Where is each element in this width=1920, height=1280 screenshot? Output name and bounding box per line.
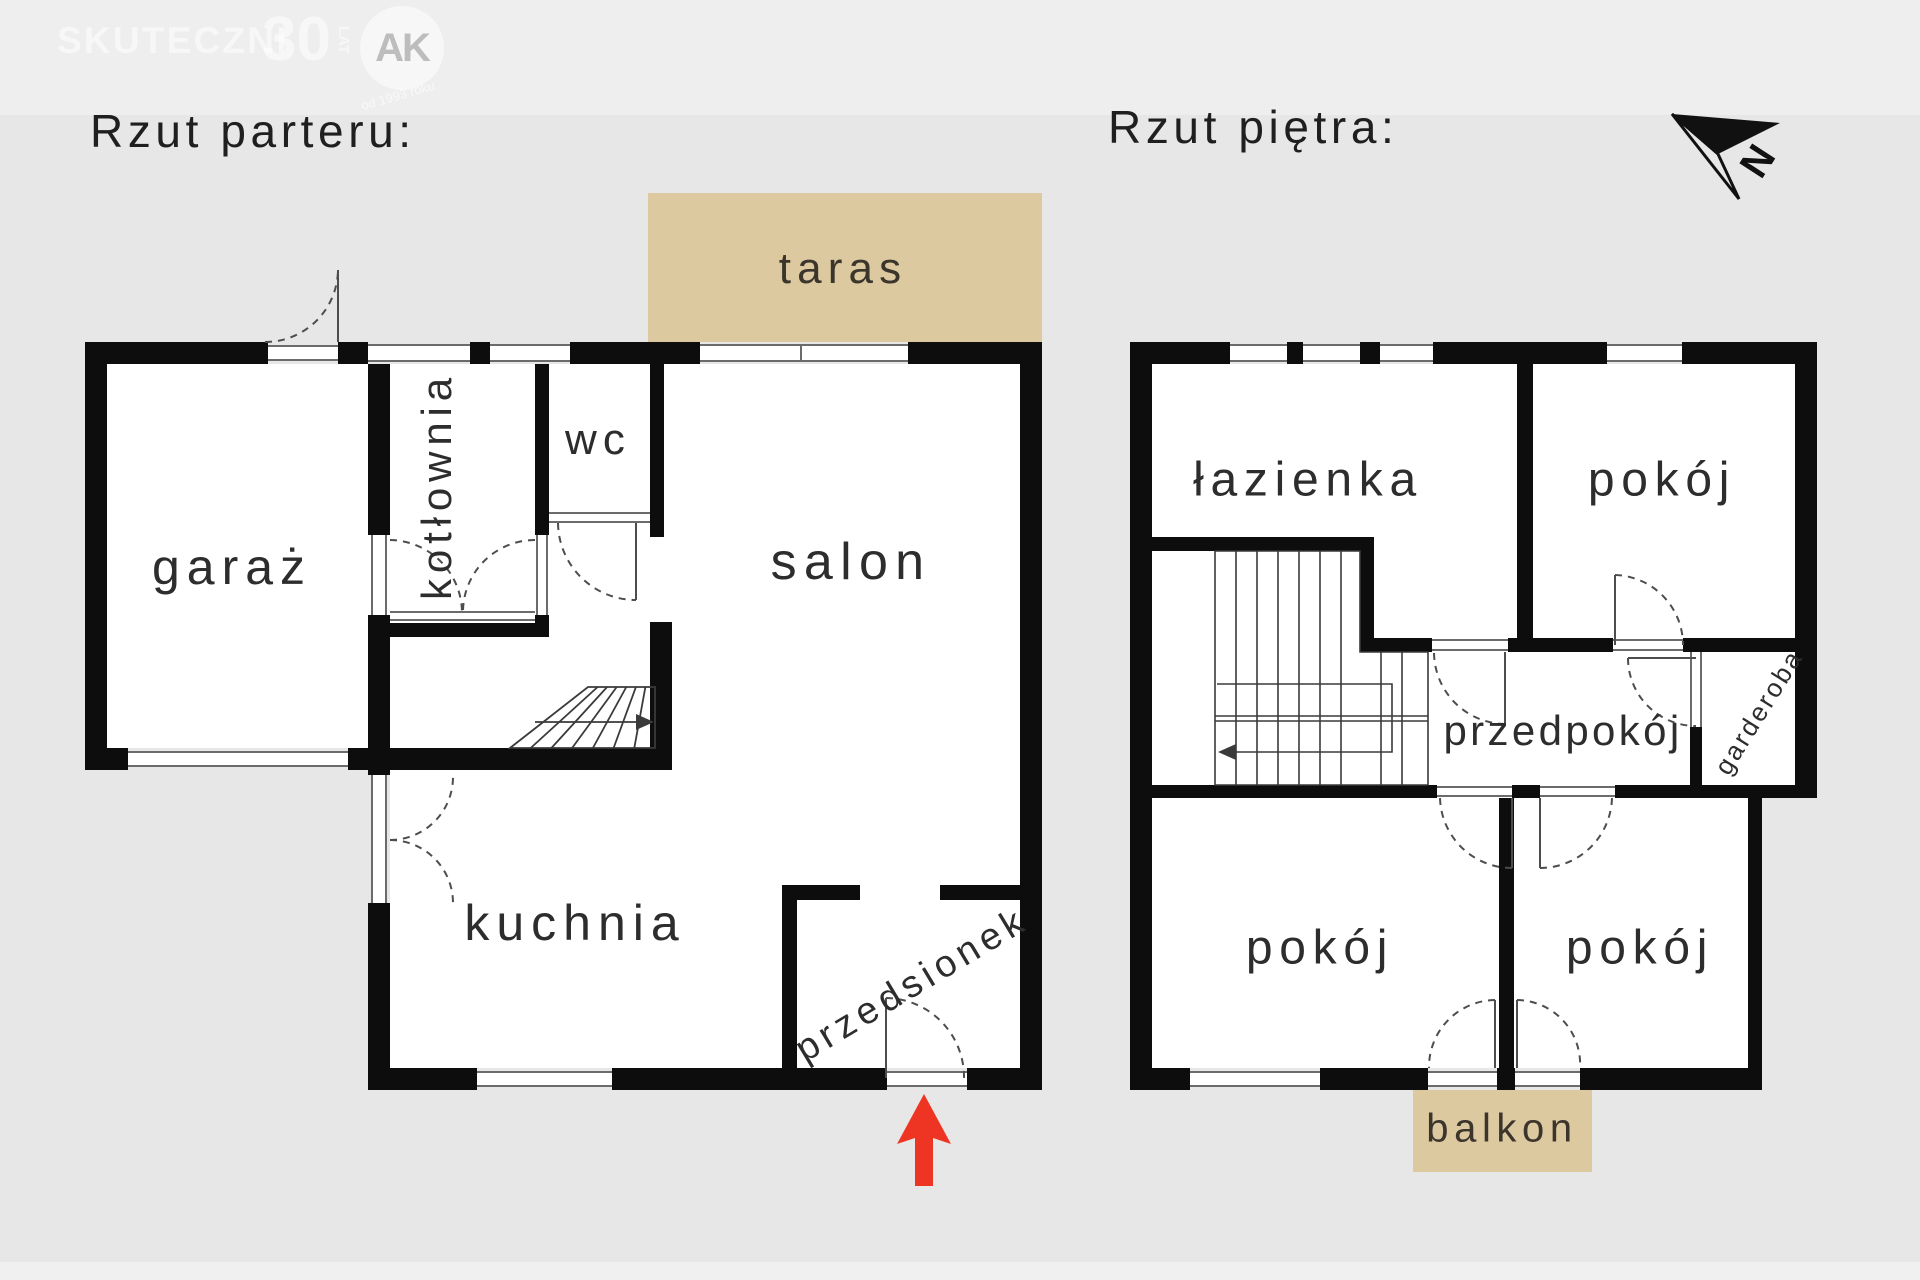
garage-door-threshold xyxy=(268,345,338,361)
wall xyxy=(1748,798,1762,1090)
terrace-door-window xyxy=(700,344,908,362)
balcony-door-right xyxy=(1515,1071,1580,1087)
balcony-door-left xyxy=(1428,1071,1497,1087)
door-opening xyxy=(1540,786,1615,797)
boiler-room-partition xyxy=(390,611,535,621)
wall xyxy=(1433,342,1607,364)
room-label-balkon: balkon xyxy=(1426,1107,1577,1152)
wall xyxy=(368,903,390,1068)
door-opening xyxy=(536,535,548,615)
watermark-brand: SKUTECZNI xyxy=(57,20,289,62)
window xyxy=(477,1071,612,1087)
north-arrow-icon: N xyxy=(1672,114,1784,199)
entrance-door-threshold xyxy=(887,1071,967,1087)
room-label-pokoj-top: pokój xyxy=(1588,453,1736,508)
room-label-garaz: garaż xyxy=(152,538,312,596)
room-label-wc: wc xyxy=(565,415,631,465)
wall xyxy=(1287,342,1303,364)
door-opening xyxy=(1437,786,1512,797)
wall xyxy=(1795,342,1817,798)
wall xyxy=(1508,638,1613,652)
watermark-lat: LAT xyxy=(335,26,352,54)
watermark-badge-monogram: AK xyxy=(375,26,429,71)
window xyxy=(1190,1071,1320,1087)
wall xyxy=(1690,727,1702,785)
wall xyxy=(1580,1068,1762,1090)
wall xyxy=(1360,537,1374,652)
bottom-background-band xyxy=(0,1262,1920,1280)
room-label-pokoj-bottom-left: pokój xyxy=(1246,921,1394,976)
wall xyxy=(85,342,107,770)
wall xyxy=(1130,342,1152,1090)
wall xyxy=(535,364,549,535)
wall xyxy=(368,364,390,535)
door-arc xyxy=(265,269,338,342)
room-label-przedpokoj: przedpokój xyxy=(1443,707,1682,755)
wall xyxy=(940,885,1042,900)
window xyxy=(1230,344,1287,362)
wall xyxy=(570,342,700,364)
wall xyxy=(470,342,490,364)
watermark-number: 30 xyxy=(262,4,331,75)
wall xyxy=(1320,1068,1428,1090)
window xyxy=(368,344,470,362)
wall xyxy=(368,1068,477,1090)
room-label-pokoj-bottom-right: pokój xyxy=(1566,921,1714,976)
north-label: N xyxy=(1732,137,1785,185)
wall xyxy=(650,622,672,770)
wall xyxy=(782,885,860,900)
wall xyxy=(612,1068,887,1090)
wall xyxy=(1147,537,1360,551)
door-opening xyxy=(371,535,387,615)
upper-floor-heading: Rzut piętra: xyxy=(1108,100,1398,154)
door-opening xyxy=(1432,639,1508,651)
wall xyxy=(1147,785,1437,798)
kitchen-side-door xyxy=(371,775,387,903)
ground-floor-heading: Rzut parteru: xyxy=(90,104,416,158)
wall xyxy=(1683,638,1817,652)
window xyxy=(128,751,348,767)
door-opening xyxy=(1613,639,1683,651)
room-label-taras: taras xyxy=(779,244,908,294)
wall xyxy=(1499,798,1514,1068)
wall xyxy=(1020,342,1042,1090)
room-label-salon: salon xyxy=(771,532,932,592)
window xyxy=(490,344,570,362)
window xyxy=(1607,344,1682,362)
wall xyxy=(368,623,549,637)
wall xyxy=(368,748,390,775)
window xyxy=(1380,344,1433,362)
wall xyxy=(1615,785,1817,798)
entrance-arrow xyxy=(897,1094,951,1186)
wardrobe-door-opening xyxy=(1690,652,1702,727)
wall xyxy=(1497,1068,1515,1090)
wall xyxy=(650,364,664,537)
wc-partition xyxy=(549,512,650,523)
room-label-kuchnia: kuchnia xyxy=(464,894,685,952)
wall xyxy=(1374,638,1432,652)
floor-plan-canvas: SKUTECZNI 30 LAT AK od 1993 roku Rzut pa… xyxy=(0,0,1920,1280)
room-label-kotlownia: kotłownia xyxy=(413,372,461,600)
wall xyxy=(338,342,368,364)
window xyxy=(1303,344,1360,362)
wall xyxy=(85,748,128,770)
wall xyxy=(348,748,672,770)
wall xyxy=(1360,342,1380,364)
wall xyxy=(1517,364,1533,652)
wall xyxy=(1130,1068,1190,1090)
window-mullion xyxy=(800,344,802,362)
room-label-lazienka: łazienka xyxy=(1193,453,1423,508)
wall xyxy=(85,342,268,364)
wall xyxy=(1512,785,1540,798)
